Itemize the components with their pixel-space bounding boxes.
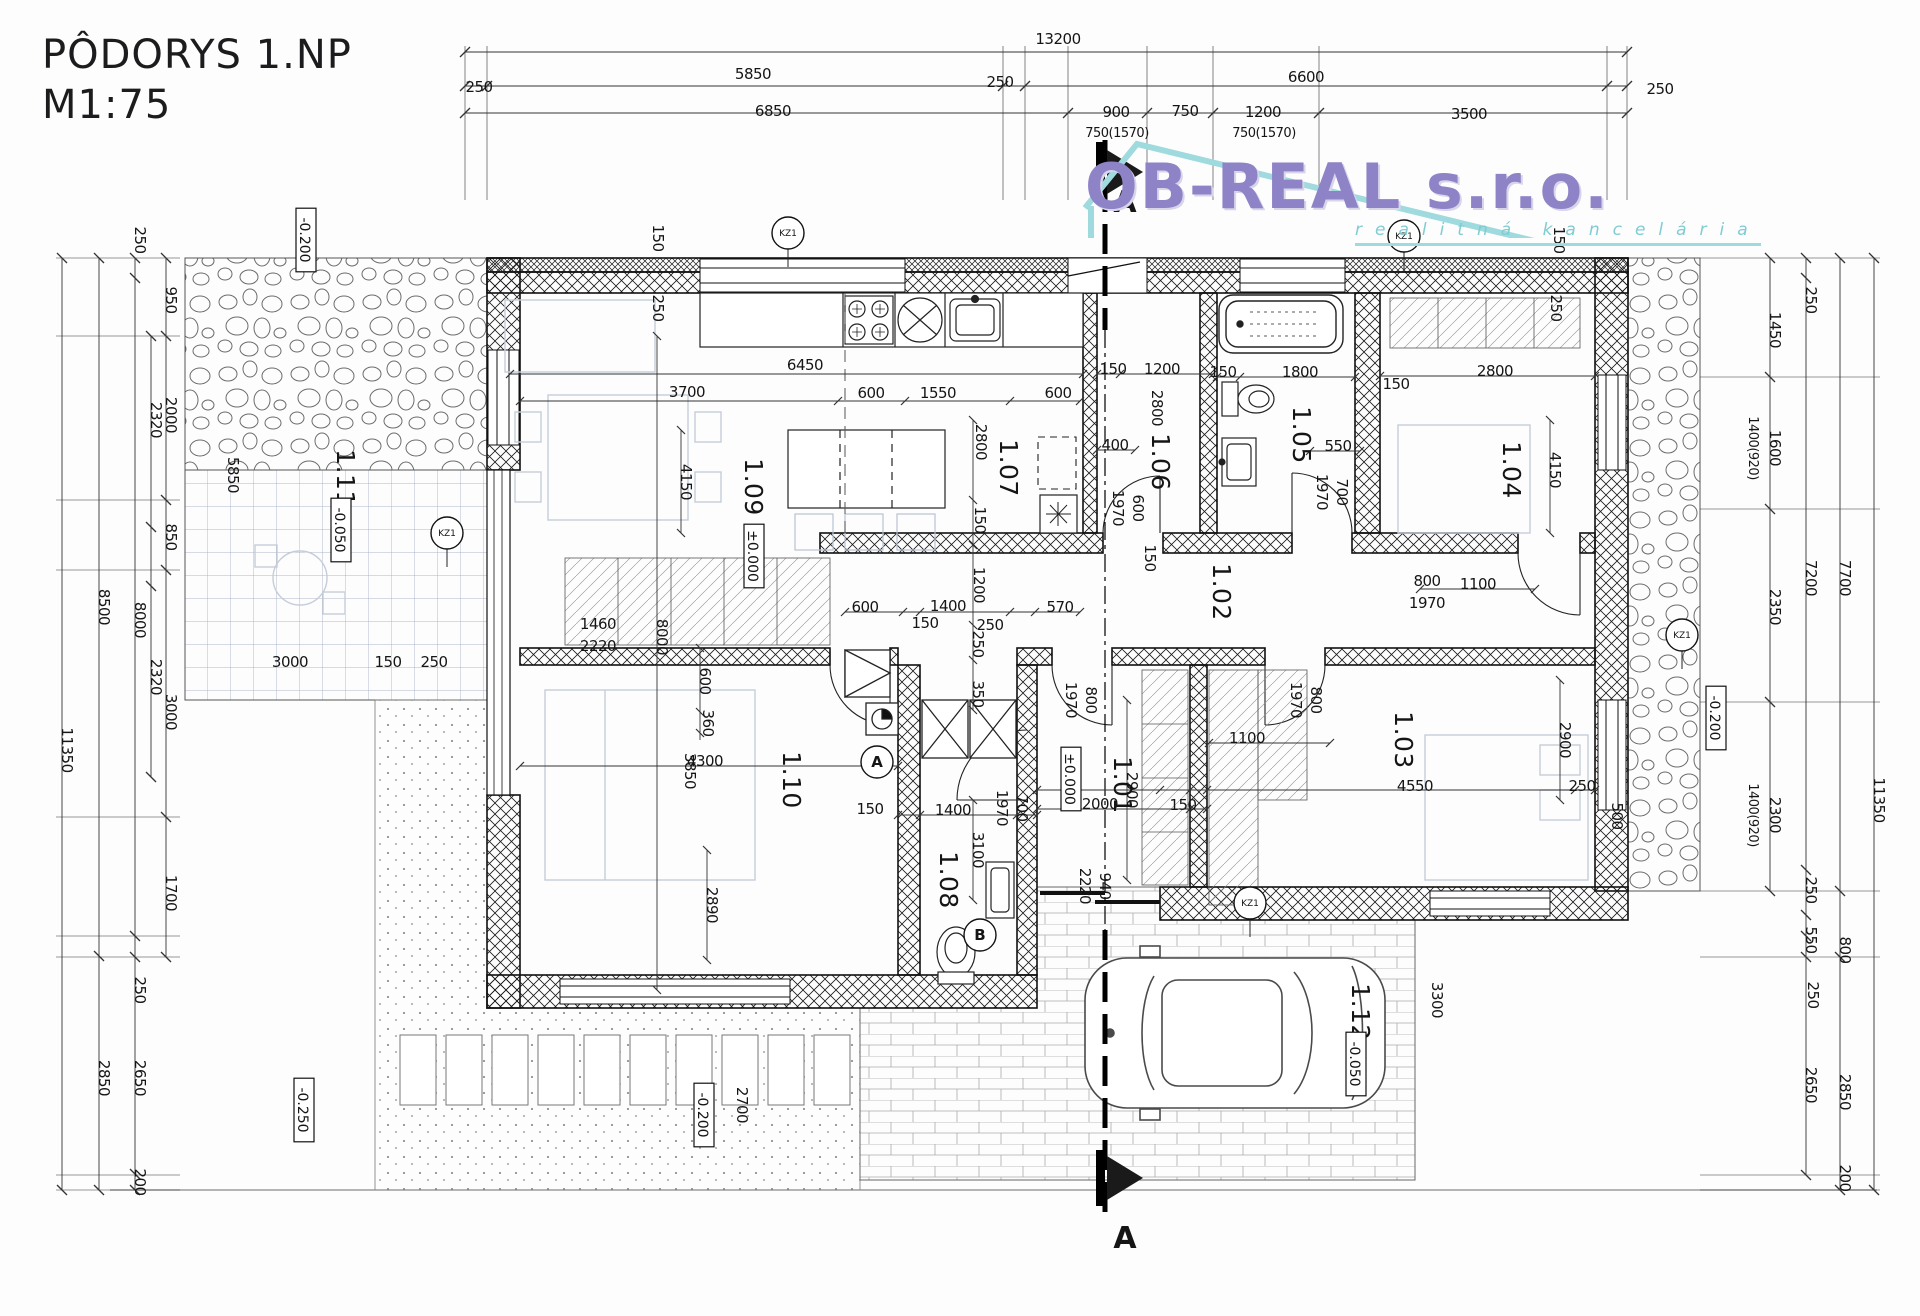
dim-label: 1200 [1144, 360, 1180, 378]
label-text: 600 [851, 598, 878, 616]
label-text: 4150 [1546, 452, 1564, 488]
window-kitchen [700, 259, 905, 292]
label-text: -0.200 [296, 217, 312, 262]
window-104-right [1598, 375, 1626, 470]
dim-label: 2700 [733, 1087, 751, 1123]
label-text: 1.05 [1287, 406, 1316, 464]
wardrobe-101 [1142, 670, 1188, 885]
label-text: 250 [131, 226, 149, 253]
label-text: 1.02 [1207, 563, 1236, 621]
room-label: 1.03 [1389, 711, 1418, 769]
label-text: -0.200 [1706, 695, 1722, 740]
label-text: 850 [162, 523, 180, 550]
dim-label: 150 [971, 506, 989, 533]
dim-label: 4150 [1546, 452, 1564, 488]
drawing-title: PÔDORYS 1.NP [42, 30, 352, 80]
dim-label: 2650 [1802, 1067, 1820, 1103]
dim-label: 8000 [131, 602, 149, 638]
label-text: 2890 [703, 887, 721, 923]
label-text: 5850 [735, 65, 771, 83]
dim-label: 400 [1101, 436, 1128, 454]
sink-105-icon [1219, 438, 1256, 486]
label-text: 11350 [58, 727, 76, 772]
dim-label: 1550 [920, 384, 956, 402]
label-text: 2800 [972, 424, 990, 460]
label-text: 1550 [920, 384, 956, 402]
dim-label: 2650 [131, 1060, 149, 1096]
label-text: 250 [986, 73, 1013, 91]
wall-105-104 [1355, 293, 1380, 533]
dim-label: 360 [699, 709, 717, 736]
dim-label: 350 [969, 680, 987, 707]
label-text: 1.10 [777, 751, 806, 809]
label-text: 250 [420, 653, 447, 671]
dim-label: 800 [1413, 572, 1440, 590]
dim-label: 1970 [1062, 682, 1080, 718]
dim-label: 500 [1608, 802, 1626, 829]
dim-label: 250 [1568, 777, 1595, 795]
dim-label: 11350 [1870, 777, 1888, 822]
dim-label: 600 [851, 598, 878, 616]
wall-corridor-bot-c [1325, 648, 1595, 665]
bed-110 [545, 690, 755, 880]
gravel-band-right [1628, 258, 1700, 891]
dim-label: 800 [1307, 686, 1325, 713]
label-text: 200 [1836, 1164, 1854, 1191]
dim-label: 1600 [1766, 430, 1784, 466]
label-text: 1400 [930, 597, 966, 615]
label-text: 11350 [1870, 777, 1888, 822]
floor-plan-page: A A 132002505850250660025068509007501200… [0, 0, 1920, 1316]
fridge-icon [1040, 495, 1077, 533]
elevation-label: -0.200 [296, 208, 316, 272]
dim-label: 750 [1171, 102, 1198, 120]
wall-top-insulation [487, 258, 1628, 272]
room-label: 1.08 [934, 851, 963, 909]
label-text: ±0.000 [744, 530, 760, 582]
label-text: 150 [1141, 544, 1159, 571]
label-text: 3100 [969, 832, 987, 868]
dim-label: 3300 [1428, 982, 1446, 1018]
label-text: 600 [696, 667, 714, 694]
label-text: -0.200 [694, 1092, 710, 1137]
dim-label: 900 [1102, 103, 1129, 121]
dim-label: 250 [969, 630, 987, 657]
wall-110-top-b [890, 648, 898, 665]
label-text: 1200 [970, 567, 988, 603]
washing-machine-icon [866, 703, 898, 735]
dim-label: 2890 [703, 887, 721, 923]
shower-icon [922, 700, 1016, 758]
label-text: 600 [1044, 384, 1071, 402]
company-logo: OB-REAL s.r.o. realitná kancelária [1075, 128, 1885, 238]
label-text: 2000 [1082, 795, 1118, 813]
dim-label: 2220 [580, 637, 616, 655]
dim-label: 1200 [970, 567, 988, 603]
dim-label: 250 [1646, 80, 1673, 98]
label-text: 3300 [1428, 982, 1446, 1018]
label-text: 3000 [162, 694, 180, 730]
dim-label: 6600 [1288, 68, 1324, 86]
elevation-label: ±0.000 [744, 524, 764, 588]
label-text: 2000 [162, 397, 180, 433]
label-text: 1.03 [1389, 711, 1418, 769]
label-text: 800 [1307, 686, 1325, 713]
sofa [505, 300, 655, 372]
wall-top [487, 272, 1628, 293]
dim-label: 8500 [95, 589, 113, 625]
room-label: 1.07 [994, 439, 1023, 497]
label-text: 250 [1802, 286, 1820, 313]
car-icon [1085, 946, 1385, 1120]
detail-marker: A [861, 746, 893, 778]
elevation-label: -0.200 [1706, 686, 1726, 750]
bathtub-icon [1219, 295, 1343, 353]
sink-108-icon [986, 862, 1014, 918]
dim-label: 5850 [735, 65, 771, 83]
label-text: 800 [1836, 936, 1854, 963]
label-text: 950 [162, 286, 180, 313]
label-text: 1200 [1245, 103, 1281, 121]
label-text: 150 [1169, 796, 1196, 814]
dim-label: 2220 [1076, 868, 1094, 904]
label-text: 2320 [147, 659, 165, 695]
dim-label: 550 [1324, 437, 1351, 455]
wall-corridor-top-b [1163, 533, 1292, 553]
window-bath-top [1240, 259, 1345, 292]
dim-label: 1970 [1287, 682, 1305, 718]
label-text: 1400(920) [1745, 416, 1760, 480]
label-text: 1970 [1287, 682, 1305, 718]
label-text: 4550 [1397, 777, 1433, 795]
label-text: 250 [1804, 981, 1822, 1008]
dim-label: 5850 [224, 457, 242, 493]
dim-label: 3500 [1451, 105, 1487, 123]
label-text: 350 [969, 680, 987, 707]
dim-label: 1800 [1282, 363, 1318, 381]
dim-label: 950 [162, 286, 180, 313]
dim-label: 200 [131, 1168, 149, 1195]
dim-label: 600 [857, 384, 884, 402]
label-text: 2850 [1836, 1074, 1854, 1110]
label-text: 2300 [1766, 797, 1784, 833]
label-text: -0.250 [294, 1087, 310, 1132]
dim-label: 150 [374, 653, 401, 671]
wardrobe-103-a [1209, 670, 1258, 905]
label-text: 550 [1324, 437, 1351, 455]
dim-label: 2800 [1477, 362, 1513, 380]
label-text: 2850 [95, 1060, 113, 1096]
label-text: 200 [131, 1168, 149, 1195]
label-text: 250 [976, 616, 1003, 634]
logo-subtitle: realitná kancelária [1355, 220, 1761, 246]
kitchen-counter [700, 293, 1083, 347]
wall-101-103 [1190, 665, 1207, 887]
label-text: 1.06 [1146, 433, 1175, 491]
dim-label: 550 [1802, 926, 1820, 953]
label-text: 6600 [1288, 68, 1324, 86]
dim-label: 8000 [653, 619, 671, 655]
dim-label: 700 [1013, 794, 1031, 821]
dim-label: 150 [1141, 544, 1159, 571]
label-text: 400 [1101, 436, 1128, 454]
dining-table [548, 395, 688, 520]
label-text: 5850 [224, 457, 242, 493]
dim-label: 1460 [580, 615, 616, 633]
dim-label: 250 [1802, 286, 1820, 313]
dim-label: 800 [1836, 936, 1854, 963]
label-text: 250 [131, 976, 149, 1003]
room-label: 1.04 [1497, 441, 1526, 499]
dim-label: 2900 [1556, 722, 1574, 758]
wall-110-top-a [520, 648, 830, 665]
dim-label: 2000 [1082, 795, 1118, 813]
label-text: 800 [1082, 686, 1100, 713]
label-text: 250 [1646, 80, 1673, 98]
dim-label: 1970 [1313, 474, 1331, 510]
title-block: PÔDORYS 1.NP M1:75 [42, 30, 352, 130]
wall-corridor-bot-b [1112, 648, 1265, 665]
dim-label: 3700 [669, 383, 705, 401]
label-text: 2800 [1148, 390, 1166, 426]
dim-label: 150 [1382, 375, 1409, 393]
label-text: 150 [1382, 375, 1409, 393]
dim-label: 7200 [1802, 560, 1820, 596]
room-label: 1.06 [1146, 433, 1175, 491]
elevation-label: ±0.000 [1061, 747, 1081, 811]
room-label: 1.02 [1207, 563, 1236, 621]
dim-label: 1700 [162, 875, 180, 911]
label-text: 700 [1013, 794, 1031, 821]
label-text: 360 [699, 709, 717, 736]
dim-label: 6850 [755, 102, 791, 120]
label-text: 1100 [1229, 729, 1265, 747]
detail-marker: B [964, 919, 996, 951]
dim-label: 250 [131, 976, 149, 1003]
elevation-label: -0.250 [294, 1078, 314, 1142]
dim-label: 850 [162, 523, 180, 550]
label-text: 13200 [1035, 30, 1080, 48]
label-text: 1200 [1144, 360, 1180, 378]
label-text: 550 [1802, 926, 1820, 953]
dim-label: 570 [1046, 598, 1073, 616]
label-text: 1970 [1313, 474, 1331, 510]
label-text: 4150 [677, 464, 695, 500]
dim-label: 2850 [1836, 1074, 1854, 1110]
label-text: 8000 [131, 602, 149, 638]
kz1-label: KZ1 [1241, 899, 1259, 909]
window-103-bottom [1430, 891, 1550, 916]
label-text: 2350 [1766, 589, 1784, 625]
window-110-bottom [560, 979, 790, 1004]
label-text: 700 [1333, 478, 1351, 505]
room-label: 1.05 [1287, 406, 1316, 464]
wall-corridor-top-c [1352, 533, 1518, 553]
dim-label: 250 [1802, 876, 1820, 903]
label-text: 2900 [1556, 722, 1574, 758]
dim-label: 2800 [972, 424, 990, 460]
dim-label: 1100 [1229, 729, 1265, 747]
dim-label: 6450 [787, 356, 823, 374]
wall-110-108 [898, 665, 920, 975]
label-text: 570 [1046, 598, 1073, 616]
label-text: 150 [911, 614, 938, 632]
dim-label: 800 [1082, 686, 1100, 713]
label-text: 600 [1129, 494, 1147, 521]
dim-label: 250 [131, 226, 149, 253]
label-text: 250 [465, 78, 492, 96]
detail-letter: A [871, 753, 883, 771]
label-text: 3700 [669, 383, 705, 401]
wall-106-105 [1200, 293, 1217, 533]
dim-label: 1400(920) [1745, 783, 1760, 847]
label-text: 600 [857, 384, 884, 402]
label-text: 1970 [1409, 594, 1445, 612]
dim-label: 3100 [969, 832, 987, 868]
label-text: 2220 [1076, 868, 1094, 904]
dim-label: 250 [1804, 981, 1822, 1008]
elevation-label: -0.050 [1346, 1032, 1366, 1096]
dim-label: 250 [649, 294, 667, 321]
label-text: ±0.000 [1061, 753, 1077, 805]
drawing-scale: M1:75 [42, 80, 352, 130]
kz1-label: KZ1 [779, 229, 797, 239]
dim-label: 250 [976, 616, 1003, 634]
label-text: 6850 [755, 102, 791, 120]
label-text: 1400 [935, 801, 971, 819]
elevation-label: -0.050 [331, 498, 351, 562]
dim-label: 150 [1169, 796, 1196, 814]
dim-label: 4300 [687, 752, 723, 770]
label-text: 8000 [653, 619, 671, 655]
label-text: 1600 [1766, 430, 1784, 466]
window-103-right [1598, 700, 1626, 810]
dim-label: 1400 [930, 597, 966, 615]
door-arc-104 [1518, 553, 1580, 615]
label-text: 1100 [1460, 575, 1496, 593]
label-text: 150 [1099, 360, 1126, 378]
dim-label: 1400 [935, 801, 971, 819]
dim-label: 2350 [1766, 589, 1784, 625]
dim-label: 2800 [1148, 390, 1166, 426]
label-text: 250 [1568, 777, 1595, 795]
label-text: 1700 [162, 875, 180, 911]
label-text: 150 [856, 800, 883, 818]
dim-label: 1200 [1245, 103, 1281, 121]
label-text: 4300 [687, 752, 723, 770]
dim-label: 2850 [95, 1060, 113, 1096]
label-text: 800 [1413, 572, 1440, 590]
dim-label: 1450 [1766, 312, 1784, 348]
label-text: 1.07 [994, 439, 1023, 497]
dim-label: 600 [1044, 384, 1071, 402]
dim-label: 1970 [993, 790, 1011, 826]
dim-label: 250 [420, 653, 447, 671]
dim-label: 940 [1096, 872, 1114, 899]
label-text: 1460 [580, 615, 616, 633]
dim-label: 4150 [677, 464, 695, 500]
dim-label: 600 [696, 667, 714, 694]
dim-label: 700 [1333, 478, 1351, 505]
dim-label: 7700 [1836, 560, 1854, 596]
label-text: 2700 [733, 1087, 751, 1123]
dim-label: 2300 [1766, 797, 1784, 833]
label-text: 7700 [1836, 560, 1854, 596]
label-text: 250 [1547, 294, 1565, 321]
label-text: 940 [1096, 872, 1114, 899]
room-label: 1.10 [777, 751, 806, 809]
label-text: -0.050 [1346, 1041, 1362, 1086]
label-text: 250 [1802, 876, 1820, 903]
kz1-label: KZ1 [1673, 631, 1691, 641]
label-text: 1400(920) [1745, 783, 1760, 847]
label-text: 1800 [1282, 363, 1318, 381]
detail-letter: B [974, 926, 985, 944]
label-text: 8500 [95, 589, 113, 625]
label-text: 250 [969, 630, 987, 657]
dim-label: 150 [649, 224, 667, 251]
pantry-cabinet [1038, 437, 1076, 489]
label-text: 150 [374, 653, 401, 671]
kz1-label: KZ1 [438, 529, 456, 539]
dim-label: 4550 [1397, 777, 1433, 795]
label-text: 150 [1209, 363, 1236, 381]
label-text: 1450 [1766, 312, 1784, 348]
toilet-105-icon [1222, 382, 1274, 416]
elevation-label: -0.200 [694, 1083, 714, 1147]
label-text: 150 [649, 224, 667, 251]
dim-label: 1970 [1409, 594, 1445, 612]
label-text: 750 [1171, 102, 1198, 120]
label-text: 2900 [1123, 772, 1141, 808]
label-text: 2650 [131, 1060, 149, 1096]
label-text: 1970 [1062, 682, 1080, 718]
wall-corridor-top-d [1580, 533, 1595, 553]
dim-label: 2000 [162, 397, 180, 433]
dim-label: 150 [856, 800, 883, 818]
label-text: 6450 [787, 356, 823, 374]
dim-label: 1100 [1460, 575, 1496, 593]
label-text: 1970 [993, 790, 1011, 826]
dim-label: 150 [911, 614, 938, 632]
wall-kitchen-106 [1083, 293, 1097, 533]
section-letter-bottom: A [1113, 1221, 1137, 1256]
kitchen-island [788, 430, 945, 550]
label-text: 2650 [1802, 1067, 1820, 1103]
door-arc-101 [1052, 665, 1112, 725]
label-text: -0.050 [331, 507, 347, 552]
wall-corridor-bot-a [1017, 648, 1052, 665]
dim-label: 600 [1129, 494, 1147, 521]
label-text: 3500 [1451, 105, 1487, 123]
dim-label: 3000 [272, 653, 308, 671]
label-text: 3000 [272, 653, 308, 671]
dim-label: 150 [1209, 363, 1236, 381]
label-text: 2220 [580, 637, 616, 655]
dim-label: 11350 [58, 727, 76, 772]
label-text: 2800 [1477, 362, 1513, 380]
label-text: 500 [1608, 802, 1626, 829]
label-text: 7200 [1802, 560, 1820, 596]
logo-text: OB-REAL s.r.o. [1085, 150, 1610, 223]
label-text: 900 [1102, 103, 1129, 121]
label-text: 1.04 [1497, 441, 1526, 499]
dim-label: 3000 [162, 694, 180, 730]
gravel-patch-topleft [185, 258, 487, 470]
dim-label: 250 [465, 78, 492, 96]
label-text: 1.08 [934, 851, 963, 909]
dim-label: 150 [1099, 360, 1126, 378]
